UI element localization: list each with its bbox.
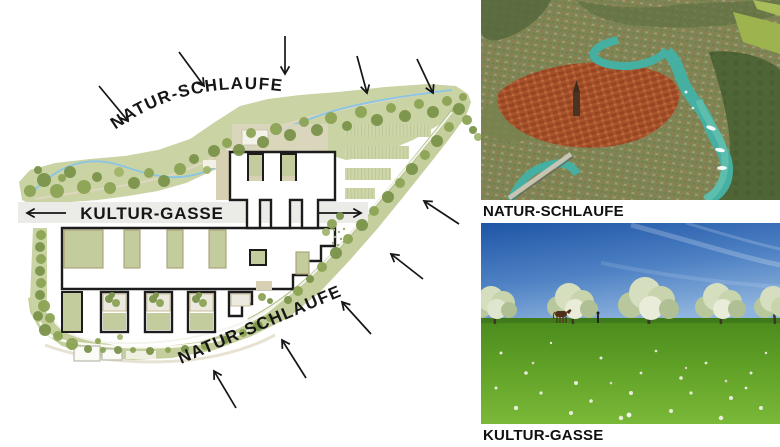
site-plan-diagram: NATUR-SCHLAUFE KULTUR-GASSE NATUR-SCHLAU… xyxy=(0,0,481,447)
caption-natur-schlaufe: NATUR-SCHLAUFE xyxy=(483,199,780,223)
finger-1 xyxy=(62,292,82,332)
caption-kultur-gasse: KULTUR-GASSE xyxy=(483,423,780,447)
photo-natur-schlaufe xyxy=(481,0,780,200)
photo-kultur-gasse xyxy=(481,223,780,424)
page: NATUR-SCHLAUFE KULTUR-GASSE NATUR-SCHLAU… xyxy=(0,0,780,447)
finger-2 xyxy=(101,292,128,332)
cathedral-tower xyxy=(573,92,580,116)
finger-3 xyxy=(145,292,172,332)
finger-4 xyxy=(188,292,215,332)
kultur-gasse-label: KULTUR-GASSE xyxy=(80,204,223,223)
meadow xyxy=(481,318,780,424)
finger-5 xyxy=(229,292,252,316)
stair-terrace xyxy=(256,281,272,290)
